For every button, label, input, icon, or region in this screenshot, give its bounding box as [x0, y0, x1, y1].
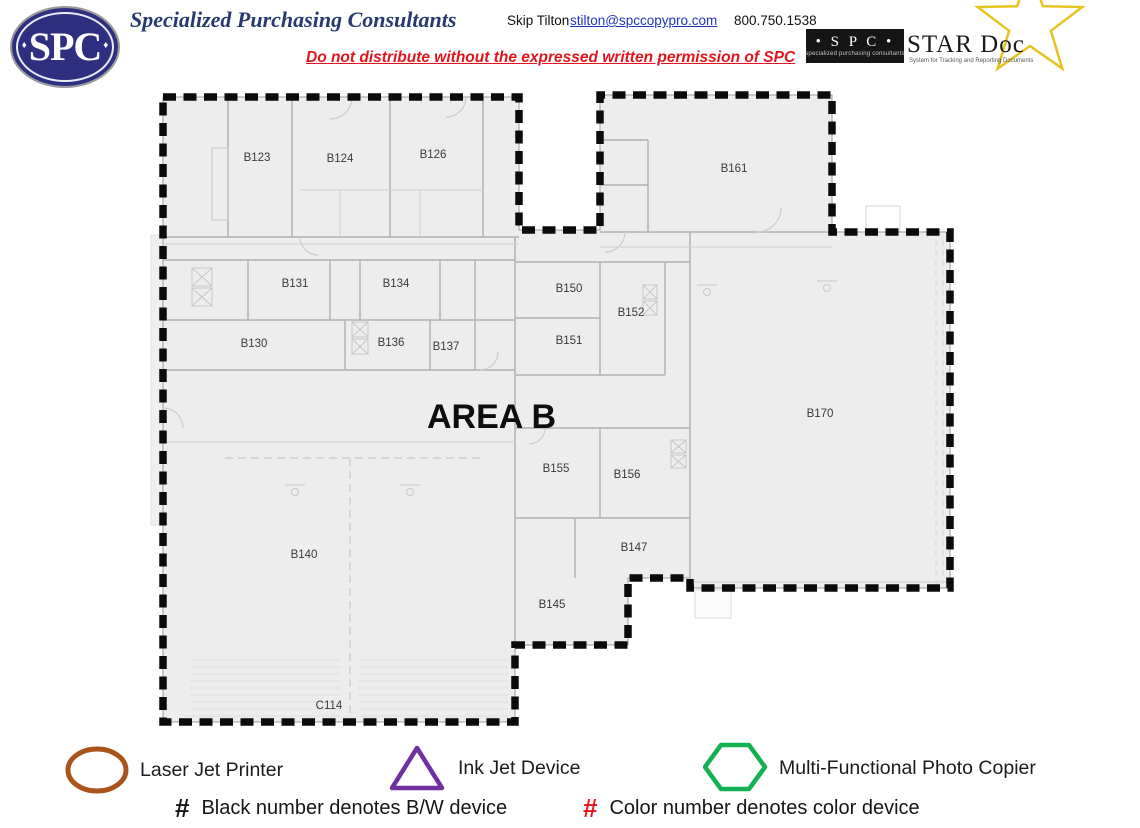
legend-note-bw: # Black number denotes B/W device [175, 795, 507, 821]
room-label-B170: B170 [807, 408, 834, 420]
logo-diamond-icon: ♦ [103, 40, 108, 51]
black-hash-icon: # [175, 795, 189, 821]
star-doc-subtitle: System for Tracking and Reporting Docume… [909, 58, 1033, 64]
legend-note-color-text: Color number denotes color device [609, 797, 919, 820]
distribution-warning: Do not distribute without the expressed … [306, 49, 795, 67]
room-label-B136: B136 [378, 337, 405, 349]
star-doc-spc-box: • S P C • specialized purchasing consult… [806, 29, 904, 63]
laser-jet-oval-icon [64, 744, 130, 796]
room-label-B131: B131 [282, 278, 309, 290]
star-doc-spc-label: • S P C • [816, 35, 895, 51]
red-hash-icon: # [583, 795, 597, 821]
legend-item-ink-jet: Ink Jet Device [388, 744, 580, 792]
room-label-B156: B156 [614, 469, 641, 481]
room-label-C114: C114 [316, 700, 343, 712]
contact-name: Skip Tilton [507, 13, 569, 28]
room-label-B151: B151 [556, 335, 583, 347]
room-label-B126: B126 [420, 149, 447, 161]
contact-email-link[interactable]: stilton@spccopypro.com [570, 13, 717, 28]
contact-phone: 800.750.1538 [734, 13, 817, 28]
room-label-B152: B152 [618, 307, 645, 319]
legend-label-laser-jet: Laser Jet Printer [140, 759, 283, 782]
room-label-B145: B145 [539, 599, 566, 611]
logo-text: SPC [29, 27, 102, 67]
room-label-B150: B150 [556, 283, 583, 295]
copier-hexagon-icon [703, 742, 769, 794]
ink-jet-triangle-icon [388, 744, 446, 792]
room-label-B140: B140 [291, 549, 318, 561]
room-label-B130: B130 [241, 338, 268, 350]
star-doc-spc-caption: specialized purchasing consultants [805, 51, 905, 57]
legend-item-copier: Multi-Functional Photo Copier [703, 742, 1036, 794]
legend-item-laser-jet: Laser Jet Printer [64, 744, 283, 796]
spc-logo: ♦SPC♦ [10, 6, 120, 88]
room-label-B137: B137 [433, 341, 460, 353]
legend-note-color: # Color number denotes color device [583, 795, 920, 821]
room-label-B147: B147 [621, 542, 648, 554]
page: B123B124B126B161B131B134B150B152B130B136… [0, 0, 1140, 828]
legend-label-ink-jet: Ink Jet Device [458, 757, 580, 780]
legend-note-bw-text: Black number denotes B/W device [201, 797, 507, 820]
room-label-B134: B134 [383, 278, 410, 290]
star-doc-title: STAR Doc [907, 31, 1025, 59]
room-label-B155: B155 [543, 463, 570, 475]
room-label-B161: B161 [721, 163, 748, 175]
floor-plan: B123B124B126B161B131B134B150B152B130B136… [0, 0, 1140, 828]
room-label-B123: B123 [244, 152, 271, 164]
area-title: AREA B [427, 398, 556, 437]
company-title: Specialized Purchasing Consultants [130, 7, 456, 33]
room-label-B124: B124 [327, 153, 354, 165]
legend-label-copier: Multi-Functional Photo Copier [779, 757, 1036, 780]
logo-diamond-icon: ♦ [22, 40, 27, 51]
